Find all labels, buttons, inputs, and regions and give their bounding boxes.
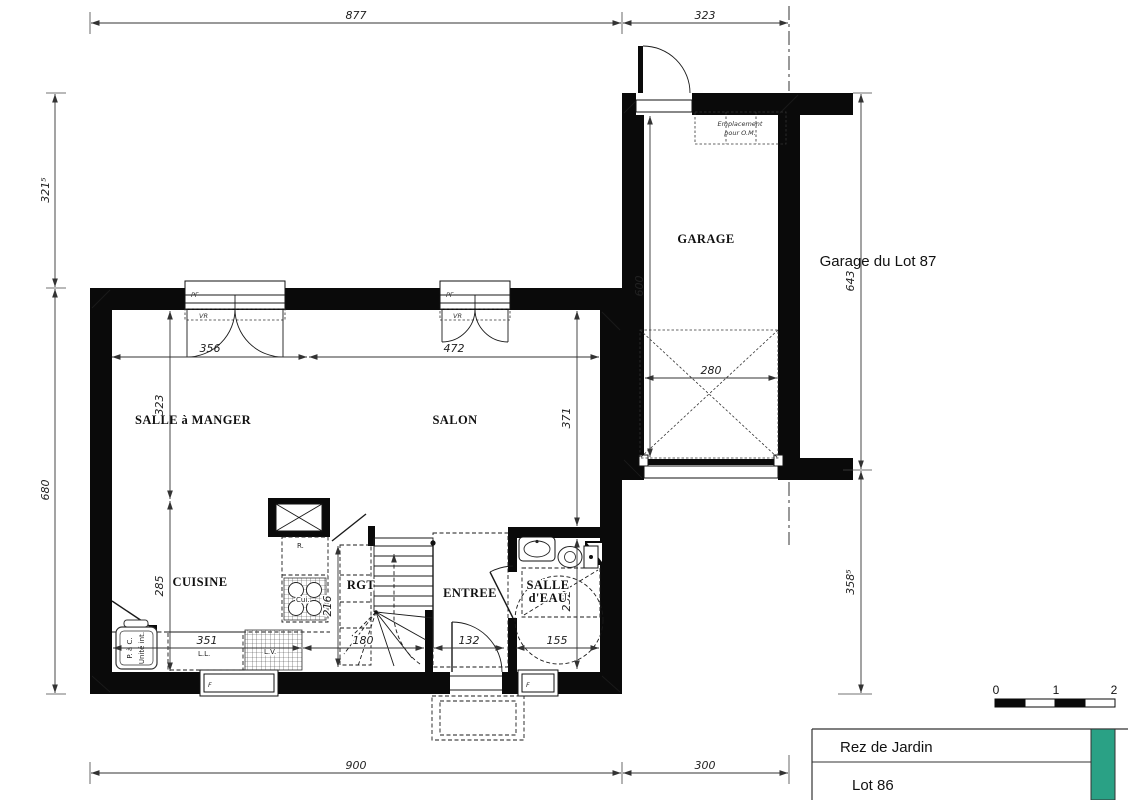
om-label-2: pour O.M. [723,129,756,137]
dim-877: 877 [346,9,367,22]
window-type-label: PF [191,291,199,299]
dim-321-5: 321⁵ [39,177,52,202]
scale-tick-1: 1 [1053,683,1060,697]
dim-900: 900 [346,759,367,772]
garage-side-door [636,46,692,115]
dim-351: 351 [197,634,218,647]
dim-180: 180 [353,634,374,647]
car-space [640,330,778,458]
window-label: F [526,681,530,689]
room-label-salle-eau-2: d'EAU [529,591,568,605]
front-door [450,622,502,694]
dim-356: 356 [200,342,221,355]
om-label-1: Emplacement [718,120,763,128]
floor-plan-sheet: PF VR PF VR F F [0,0,1128,800]
room-label-salle-eau-1: SALLE [527,578,570,592]
garage-lot-note: Garage du Lot 87 [820,253,937,270]
room-label-rgt: RGT [347,578,376,592]
window-type-label: PF [446,291,454,299]
title-block: Rez de Jardin Lot 86 [812,729,1128,800]
dim-285: 285 [153,576,166,597]
title-block-lot: Lot 86 [852,777,894,794]
rgt-zone [340,545,371,665]
dim-680: 680 [39,480,52,501]
duct-label: R. [297,542,304,550]
room-label-cuisine: CUISINE [173,575,228,589]
dim-643: 643 [844,271,857,292]
dim-472: 472 [444,342,465,355]
kitchen-fixtures: P. à C. Unité int. L.L. L.V. Cui. R. [112,537,330,670]
scale-tick-2: 2 [1111,683,1118,697]
title-block-floor: Rez de Jardin [840,739,933,756]
door-rgt [332,514,366,541]
dim-358-5: 358⁵ [844,569,857,594]
dim-132: 132 [459,634,480,647]
window-french-2: PF VR [440,281,510,342]
cooktop-label: Cui. [296,596,310,604]
garage-door [639,455,783,480]
room-label-entree: ENTREE [443,586,497,600]
porch [432,696,524,740]
dim-280: 280 [701,364,722,377]
dim-600: 600 [633,276,646,297]
dim-300: 300 [695,759,716,772]
corner-hatches [92,95,798,692]
room-label-salle-a-manger: SALLE à MANGER [135,413,252,427]
room-label-garage: GARAGE [677,232,734,246]
toilet [558,546,598,568]
heat-pump-unit: P. à C. Unité int. [116,620,157,669]
floor-plan-drawing: PF VR PF VR F F [0,0,1128,800]
washer-label: L.L. [198,650,210,658]
shutter-label: VR [199,312,208,320]
sink [519,537,555,561]
garage-elements: Emplacement pour O.M. [640,112,786,458]
stair-walk-line [394,554,420,664]
window-kitchen: F [200,670,278,696]
dim-216: 216 [321,596,334,617]
dim-155: 155 [547,634,568,647]
dishwasher-label: L.V. [264,648,276,656]
waste-bin-area: Emplacement pour O.M. [695,112,786,144]
window-label: F [208,681,212,689]
window-bathroom: F [518,670,558,696]
shutter-label: VR [453,312,462,320]
dim-323-top: 323 [695,9,716,22]
scale-bar: 0 1 2 [993,683,1118,707]
scale-tick-0: 0 [993,683,1000,697]
room-label-salon: SALON [432,413,477,427]
title-block-accent-bar [1091,729,1115,800]
dim-371: 371 [560,408,573,429]
walls [90,93,853,694]
